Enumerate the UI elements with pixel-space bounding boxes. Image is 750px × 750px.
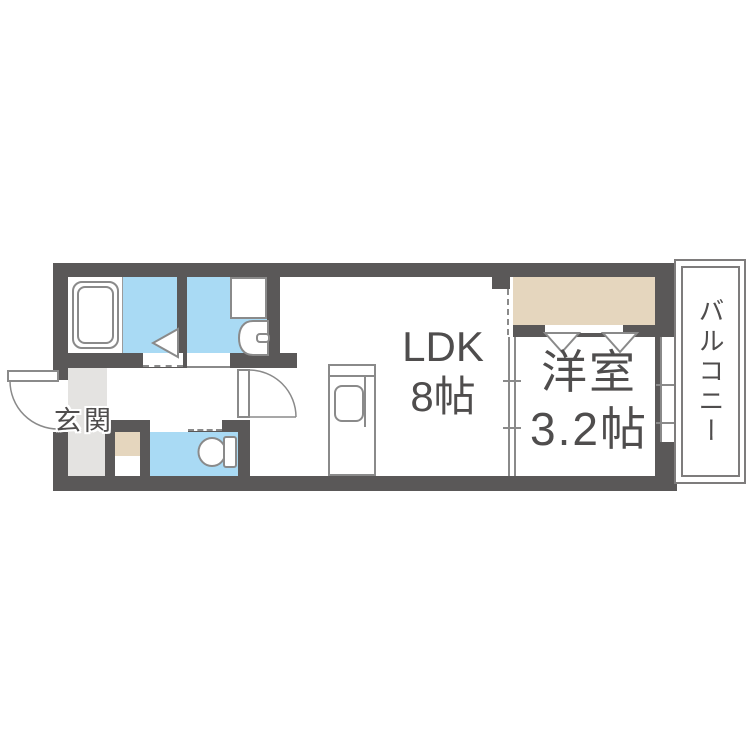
ldk-size: 8帖: [398, 372, 488, 422]
wall-left-upper: [53, 277, 68, 380]
wall-top: [53, 263, 677, 277]
western-room-size: 3.2帖: [514, 401, 664, 458]
floorplan: LDK 8帖 洋室 3.2帖 バルコニー 玄関: [0, 0, 750, 750]
kitchen-counter-side-edge: [364, 377, 366, 427]
shoe-cabinet: [115, 430, 140, 456]
kitchen-counter-edge: [330, 375, 374, 377]
wall-closet-stub: [492, 277, 510, 289]
hallway-door: [236, 367, 300, 421]
washbasin: [238, 319, 270, 357]
entrance-label: 玄関: [54, 399, 114, 438]
wall-left-lower: [53, 432, 68, 476]
bathtub: [72, 281, 119, 349]
closet: [513, 277, 655, 325]
bathroom-folding-door-icon: [150, 327, 180, 359]
closet-side-dashed-line: [507, 289, 509, 335]
bathtub-inner-line: [77, 286, 114, 344]
washroom-doorway: [187, 353, 230, 368]
kitchen-sink: [334, 385, 364, 422]
wall-shoebox-divider: [140, 424, 150, 476]
toilet: [197, 435, 240, 469]
washing-machine-pan: [230, 277, 267, 319]
ldk-room-label: LDK 8帖: [398, 322, 488, 422]
balcony-label: バルコニー: [692, 297, 729, 447]
western-room-label: 洋室 3.2帖: [514, 344, 664, 458]
toilet-doorway: [150, 420, 188, 432]
wall-bottom: [53, 476, 677, 491]
western-room-name: 洋室: [514, 344, 664, 401]
ldk-name: LDK: [398, 322, 488, 372]
toilet-doorway-dashed: [188, 420, 222, 431]
